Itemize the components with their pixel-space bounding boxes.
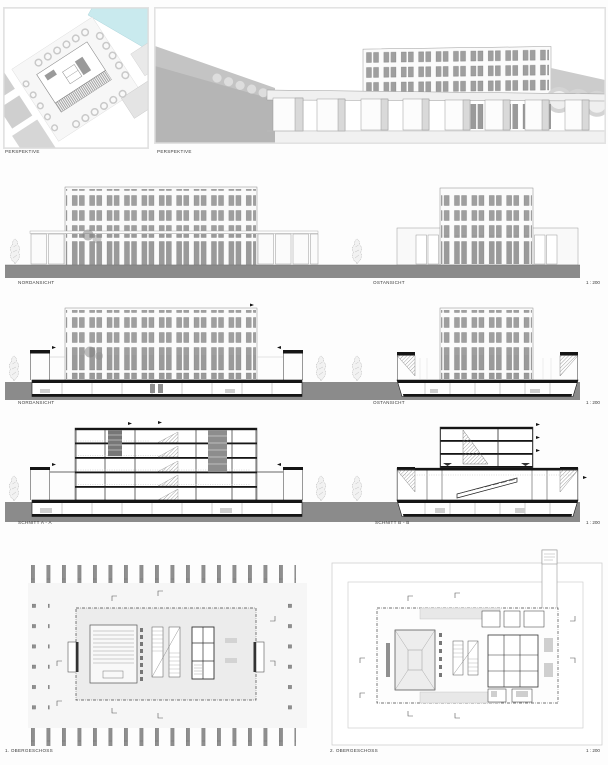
basement-cut [32, 500, 302, 517]
north-elevation-drawing [0, 178, 330, 278]
panel-section-a [0, 420, 330, 530]
east-cut-elevation-drawing [330, 300, 608, 410]
basement-cut [397, 500, 578, 517]
plan-1og-drawing [0, 543, 330, 748]
columns-left [30, 593, 50, 719]
stair-core [208, 430, 227, 472]
ground-band [5, 265, 330, 278]
caption-cut-north: NORDANSICHT [18, 401, 54, 406]
caption-street: PERSPEKTIVE [157, 150, 192, 155]
basement-cut [397, 380, 578, 397]
panel-plan-2og [320, 543, 608, 748]
caption-plan1: 1. OBERGESCHOSS [5, 749, 53, 754]
colonnade-top [30, 565, 296, 583]
street-perspective-drawing [155, 8, 605, 143]
panel-street-perspective [155, 8, 605, 143]
shaft [542, 550, 557, 610]
panel-aerial-perspective [4, 8, 148, 148]
caption-aerial: PERSPEKTIVE [5, 150, 40, 155]
panel-cut-elevation-east [330, 300, 608, 410]
plan-2og-drawing [320, 543, 608, 748]
caption-plan2: 2. OBERGESCHOSS [330, 749, 378, 754]
aerial-perspective-drawing [4, 8, 148, 148]
entry-right [254, 642, 265, 672]
auditorium [90, 625, 137, 683]
entry-left [68, 642, 79, 672]
ground-band [330, 265, 580, 278]
scale-cut-east: 1 : 200 [570, 401, 600, 406]
caption-section-a: SCHNITT A - A [18, 521, 52, 526]
panel-cut-elevation-north [0, 300, 330, 410]
scale-elev-east: 1 : 200 [570, 281, 600, 286]
upper-block [363, 46, 551, 97]
columns-right [277, 593, 297, 719]
east-elevation-drawing [330, 178, 608, 278]
caption-elev-east: OSTANSICHT [373, 281, 405, 286]
caption-section-b: SCHNITT B - B [375, 521, 410, 526]
north-cut-elevation-drawing [0, 300, 330, 410]
caption-cut-east: OSTANSICHT [373, 401, 405, 406]
service-core [192, 627, 214, 679]
panel-elevation-north [0, 178, 330, 278]
scale-section-b: 1 : 200 [570, 521, 600, 526]
presentation-board: PERSPEKTIVE [0, 0, 608, 765]
stair-core [108, 430, 122, 456]
panel-elevation-east [330, 178, 608, 278]
scale-plan2: 1 : 200 [570, 749, 600, 754]
colonnade-bottom [30, 728, 296, 746]
basement-cut [32, 380, 302, 397]
section-b-drawing [330, 420, 608, 530]
panel-section-b [330, 420, 608, 530]
caption-elev-north: NORDANSICHT [18, 281, 54, 286]
section-a-drawing [0, 420, 330, 530]
panel-plan-1og [0, 543, 330, 748]
